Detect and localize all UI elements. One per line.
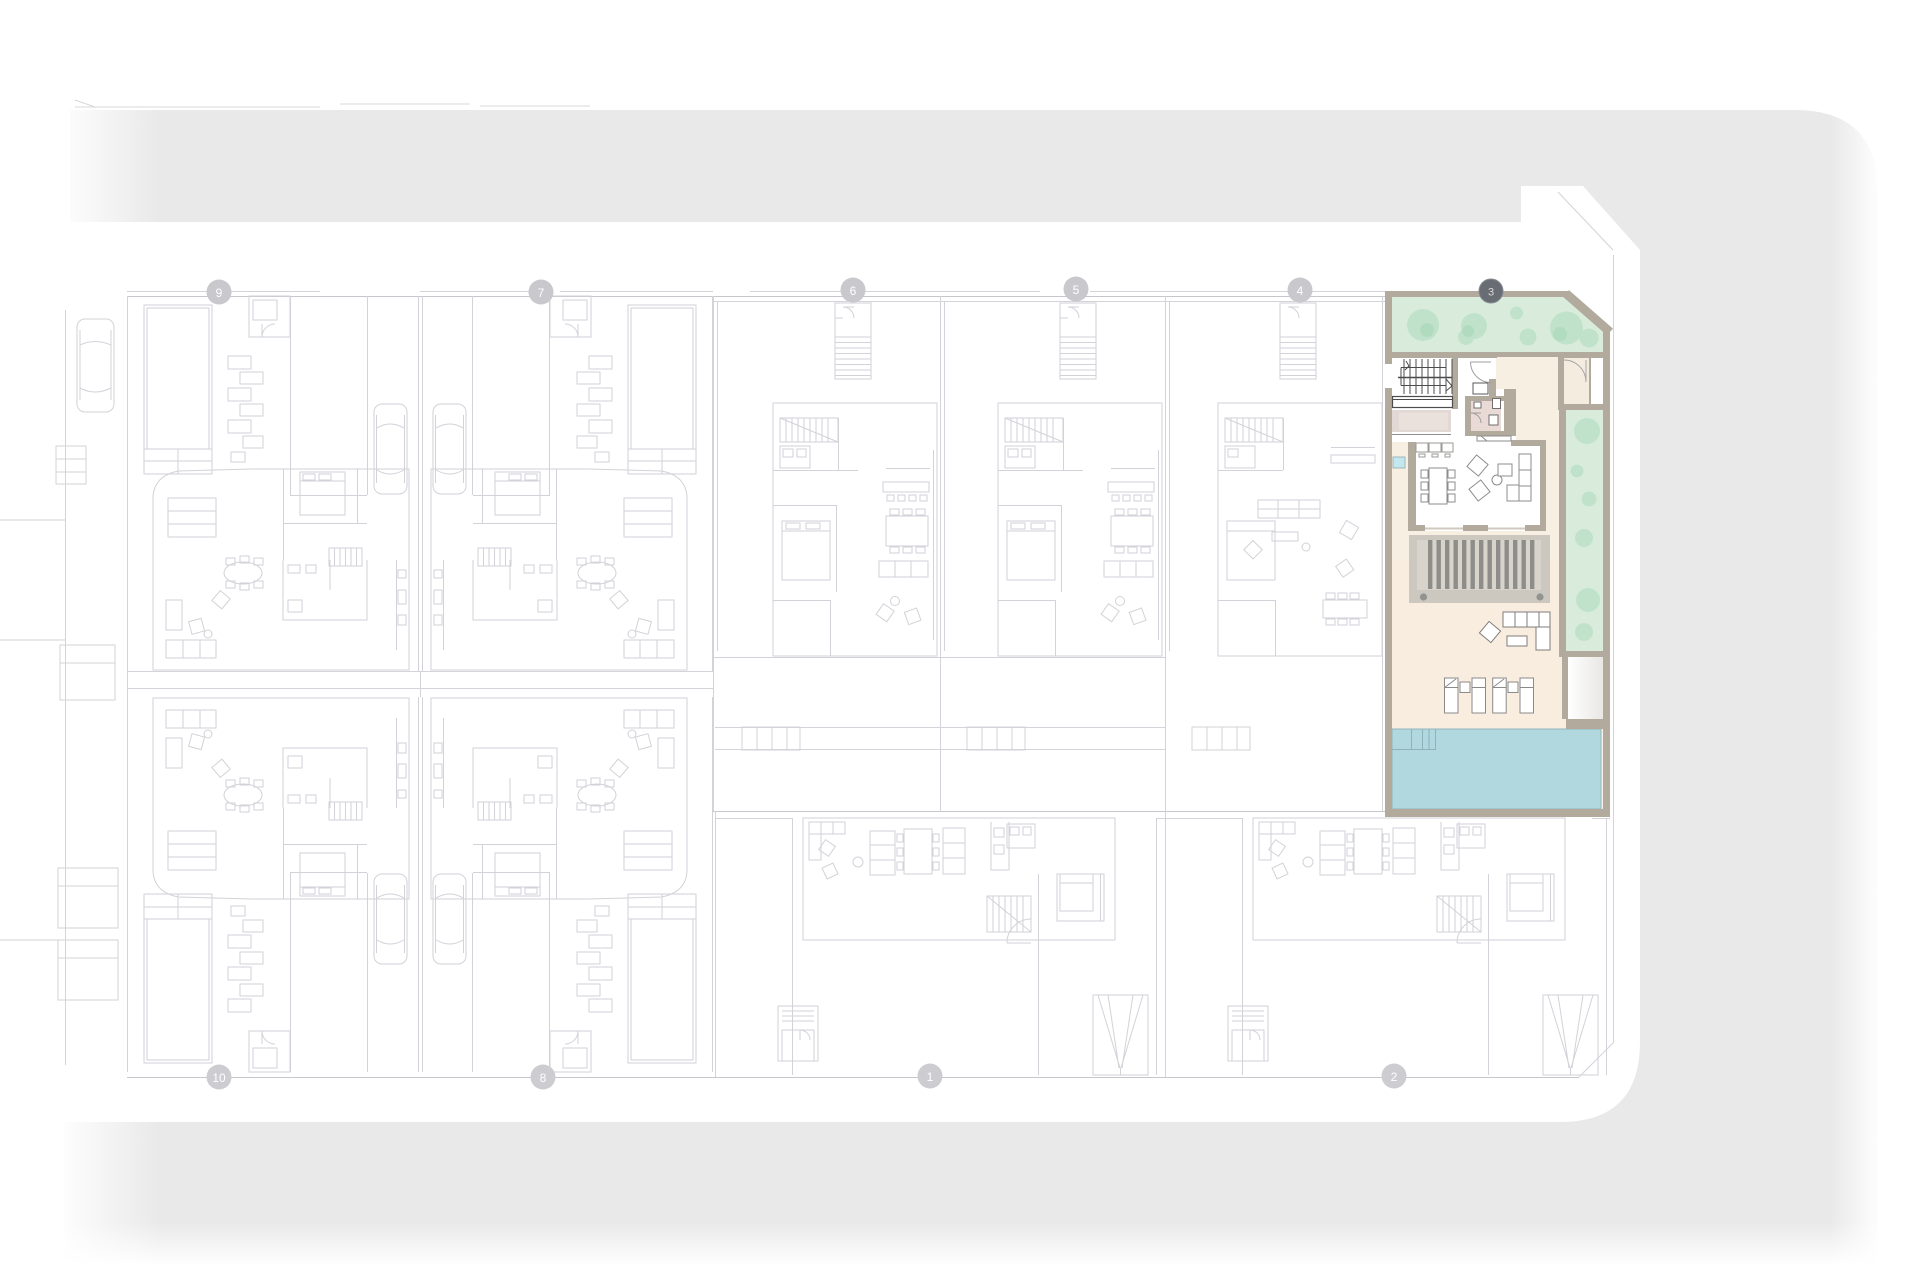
svg-text:8: 8 [540,1071,547,1085]
svg-text:10: 10 [212,1071,226,1085]
svg-text:9: 9 [216,286,223,300]
svg-text:6: 6 [850,284,857,298]
svg-text:5: 5 [1073,283,1080,297]
svg-text:4: 4 [1297,284,1304,298]
svg-text:3: 3 [1488,287,1494,299]
svg-text:1: 1 [927,1070,934,1084]
svg-text:2: 2 [1391,1070,1398,1084]
svg-text:7: 7 [538,286,545,300]
